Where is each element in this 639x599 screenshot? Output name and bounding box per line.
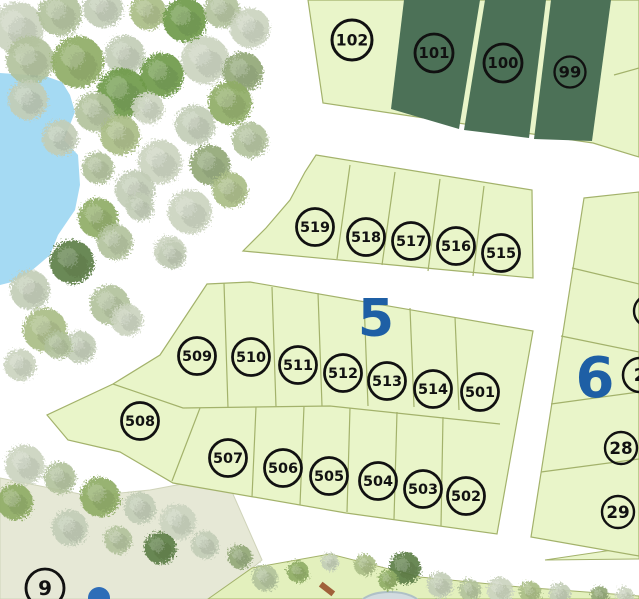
tree-icon <box>257 569 269 581</box>
tree-icon <box>88 157 102 171</box>
lot-number-label: 9 <box>38 576 52 599</box>
tree-icon <box>17 277 35 295</box>
tree-icon <box>189 44 211 66</box>
tree-icon <box>150 537 164 551</box>
lot-number-label: 504 <box>363 474 393 490</box>
tree-icon <box>196 536 209 549</box>
tree-icon <box>58 247 78 267</box>
tree-icon <box>395 557 409 571</box>
tree-icon <box>10 354 24 368</box>
tree-icon <box>171 5 191 25</box>
tree-icon <box>49 336 62 349</box>
lot-number-label: 503 <box>408 482 438 498</box>
lot-number-label: 516 <box>441 239 471 255</box>
tree-icon <box>382 573 391 582</box>
lot-number-label: 101 <box>419 45 450 62</box>
tree-icon <box>523 585 533 595</box>
block-number-label: 6 <box>576 346 615 411</box>
lot-number-label: 29 <box>606 502 629 522</box>
tree-icon <box>230 59 248 77</box>
lot-number-label: 513 <box>372 374 402 390</box>
tree-icon <box>14 44 36 66</box>
lot-number-label: 28 <box>609 438 632 458</box>
lot-number-label: 519 <box>300 220 330 236</box>
lot-number-label: 505 <box>314 469 344 485</box>
tree-icon <box>106 76 129 99</box>
tree-icon <box>163 246 176 259</box>
tree-icon <box>238 128 254 144</box>
tree-icon <box>463 583 473 593</box>
tree-icon <box>112 42 130 60</box>
tree-icon <box>218 178 234 194</box>
tree-icon <box>166 510 182 526</box>
lot-number-label: 102 <box>336 31 369 49</box>
tree-icon <box>131 198 144 211</box>
tree-icon <box>619 590 627 598</box>
tree-icon <box>232 549 243 560</box>
tree-icon <box>50 467 64 481</box>
tree-icon <box>82 99 100 117</box>
lot-number-label: 99 <box>559 63 582 82</box>
lot-number-label: 501 <box>465 385 495 401</box>
tree-icon <box>146 147 166 167</box>
tree-icon <box>594 589 602 597</box>
lot-number-label: 514 <box>418 382 448 398</box>
tree-icon <box>122 177 140 195</box>
tree-icon <box>3 490 19 506</box>
tree-icon <box>148 60 168 80</box>
tree-icon <box>103 230 119 246</box>
lot-number-label: 518 <box>351 230 381 246</box>
lot-number-label: 508 <box>125 414 155 430</box>
tree-icon <box>12 452 30 470</box>
tree-icon <box>117 309 131 323</box>
lot-number-label: 517 <box>396 234 426 250</box>
tree-icon <box>46 0 66 19</box>
tree-icon <box>216 88 236 108</box>
tree-icon <box>48 126 64 142</box>
tree-icon <box>1 11 24 34</box>
lot-number-label: 515 <box>486 246 516 262</box>
lot-number-label: 2 <box>634 365 639 386</box>
tree-icon <box>130 497 144 511</box>
tree-icon <box>197 152 215 170</box>
lot-number-label: 507 <box>213 451 243 467</box>
tree-icon <box>237 15 255 33</box>
lot-number-label: 502 <box>451 489 481 505</box>
tree-icon <box>291 565 301 575</box>
lot-number-label: 506 <box>268 461 298 477</box>
tree-icon <box>358 558 368 568</box>
site-plan-map: 56 1021011009951951851751651550951051151… <box>0 0 639 599</box>
tree-icon <box>492 581 504 593</box>
tree-icon <box>553 587 563 597</box>
tree-icon <box>176 197 196 217</box>
block-number-label: 5 <box>358 289 394 349</box>
tree-icon <box>15 87 33 105</box>
lot-number-label: 510 <box>236 350 266 366</box>
lot-number-label: 100 <box>488 55 519 72</box>
lot-number-label: 509 <box>182 349 212 365</box>
tree-icon <box>87 484 105 502</box>
tree-icon <box>432 576 444 588</box>
tree-icon <box>85 205 103 223</box>
tree-icon <box>109 531 122 544</box>
tree-icon <box>97 292 115 310</box>
tree-icon <box>136 0 152 16</box>
tree-icon <box>107 122 125 140</box>
tree-icon <box>61 45 84 68</box>
lot-number-label: 512 <box>328 366 358 382</box>
tree-icon <box>138 97 152 111</box>
tree-icon <box>182 112 200 130</box>
lot-number-label: 511 <box>283 358 313 374</box>
tree-icon <box>31 315 51 335</box>
tree-icon <box>58 516 74 532</box>
tree-icon <box>324 556 332 564</box>
